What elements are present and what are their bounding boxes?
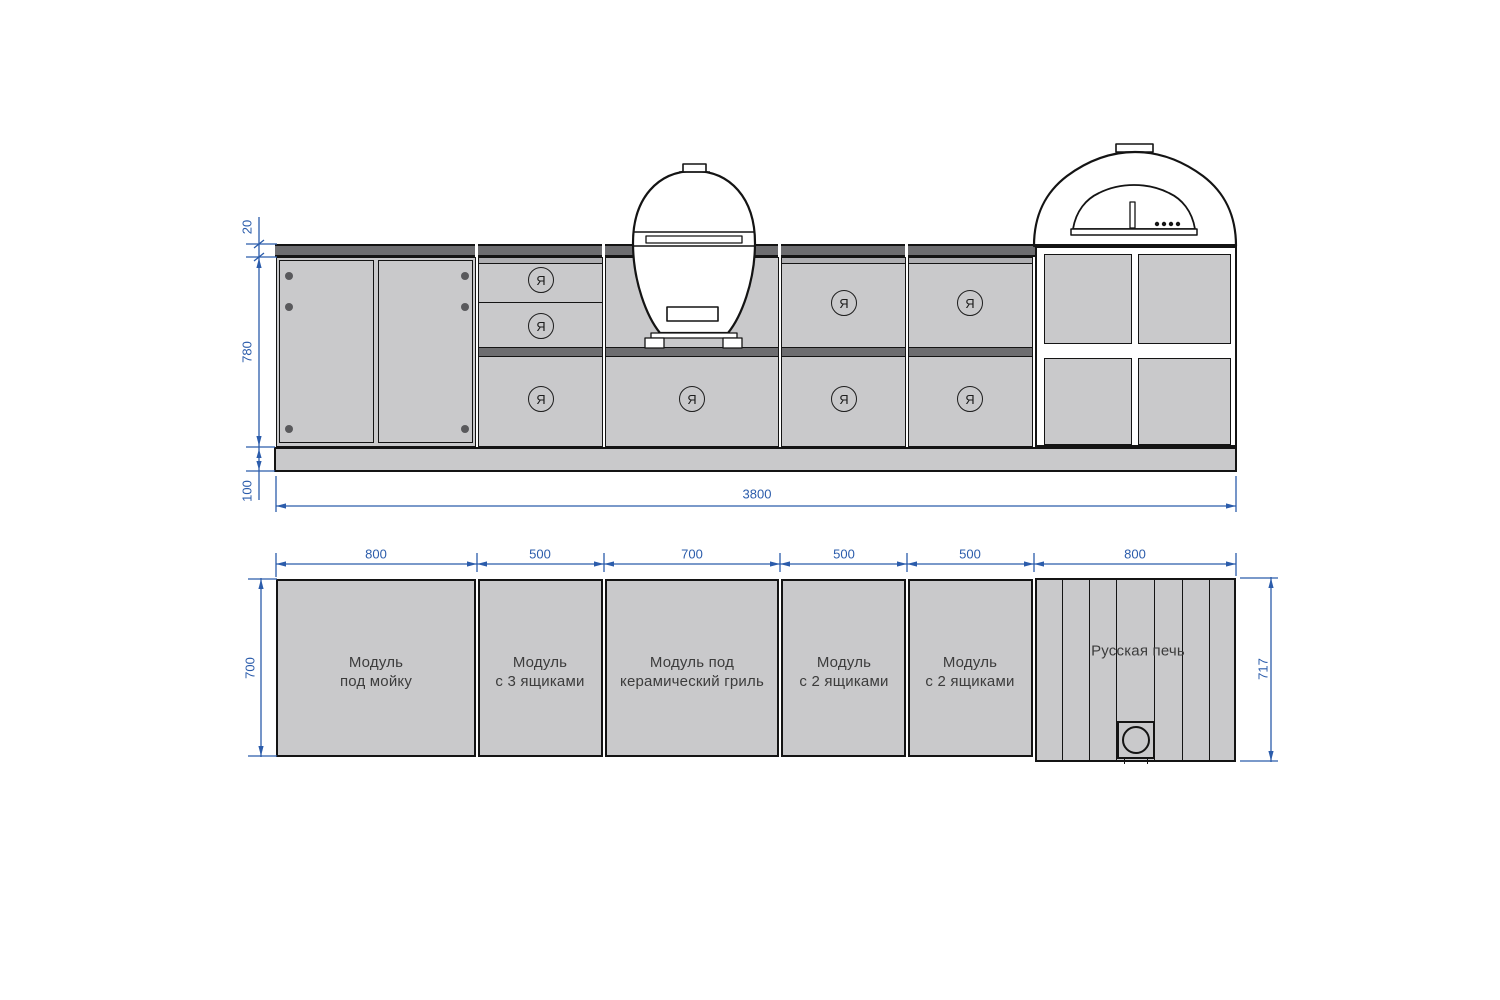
module-label-line-2: с 3 ящиками	[495, 672, 584, 691]
dim-label-module-width: 700	[681, 547, 703, 562]
stove-door-handle	[1130, 202, 1135, 228]
plan-module-label-2-drawers-a: Модуль с 2 ящиками	[799, 653, 888, 691]
plan-module-label-stove: Русская печь	[1091, 642, 1185, 661]
kamado-grill-icon	[633, 164, 755, 348]
handle-logo: Я	[831, 290, 857, 316]
kamado-base-bar	[651, 333, 737, 338]
module-label-line-1: Модуль	[495, 653, 584, 672]
kamado-foot-left	[645, 338, 664, 348]
dim-label-stove-depth: 717	[1256, 658, 1271, 680]
dim-label-depth: 700	[243, 657, 258, 679]
stove-chimney-cap	[1116, 144, 1153, 152]
dim-label-plinth-height: 100	[240, 480, 255, 502]
handle-logo: Я	[528, 313, 554, 339]
kamado-foot-right	[723, 338, 742, 348]
module-label-line-2: с 2 ящиками	[925, 672, 1014, 691]
module-label-line-1: Модуль	[340, 653, 412, 672]
plan-module-label-2-drawers-b: Модуль с 2 ящиками	[925, 653, 1014, 691]
kitchen-drawing: Я Я Я Я Я Я Я Я 20 780 100 3800 800 500 …	[0, 0, 1500, 1000]
kamado-lip	[646, 236, 742, 243]
russian-stove-dome-icon	[1034, 144, 1237, 246]
kamado-vent	[667, 307, 718, 321]
dim-label-total-width: 3800	[743, 487, 772, 502]
dim-label-countertop: 20	[240, 220, 255, 234]
dim-label-cabinet-height: 780	[240, 341, 255, 363]
plan-module-label-sink: Модуль под мойку	[340, 653, 412, 691]
dim-label-module-width: 800	[1124, 547, 1146, 562]
kamado-cap	[683, 164, 706, 172]
dim-label-module-width: 500	[529, 547, 551, 562]
handle-logo: Я	[957, 386, 983, 412]
handle-logo: Я	[528, 267, 554, 293]
handle-logo: Я	[528, 386, 554, 412]
module-label-line-1: Модуль под	[620, 653, 764, 672]
plan-module-label-grill: Модуль под керамический гриль	[620, 653, 764, 691]
module-label-line-1: Русская печь	[1091, 642, 1185, 661]
module-label-line-2: под мойку	[340, 672, 412, 691]
plan-module-label-3-drawers: Модуль с 3 ящиками	[495, 653, 584, 691]
module-label-line-1: Модуль	[799, 653, 888, 672]
dim-label-module-width: 500	[833, 547, 855, 562]
dim-label-module-width: 800	[365, 547, 387, 562]
module-label-line-2: керамический гриль	[620, 672, 764, 691]
handle-logo: Я	[679, 386, 705, 412]
handle-logo: Я	[957, 290, 983, 316]
module-label-line-2: с 2 ящиками	[799, 672, 888, 691]
stove-mouth-sill	[1071, 229, 1197, 235]
module-label-line-1: Модуль	[925, 653, 1014, 672]
handle-logo: Я	[831, 386, 857, 412]
dim-label-module-width: 500	[959, 547, 981, 562]
